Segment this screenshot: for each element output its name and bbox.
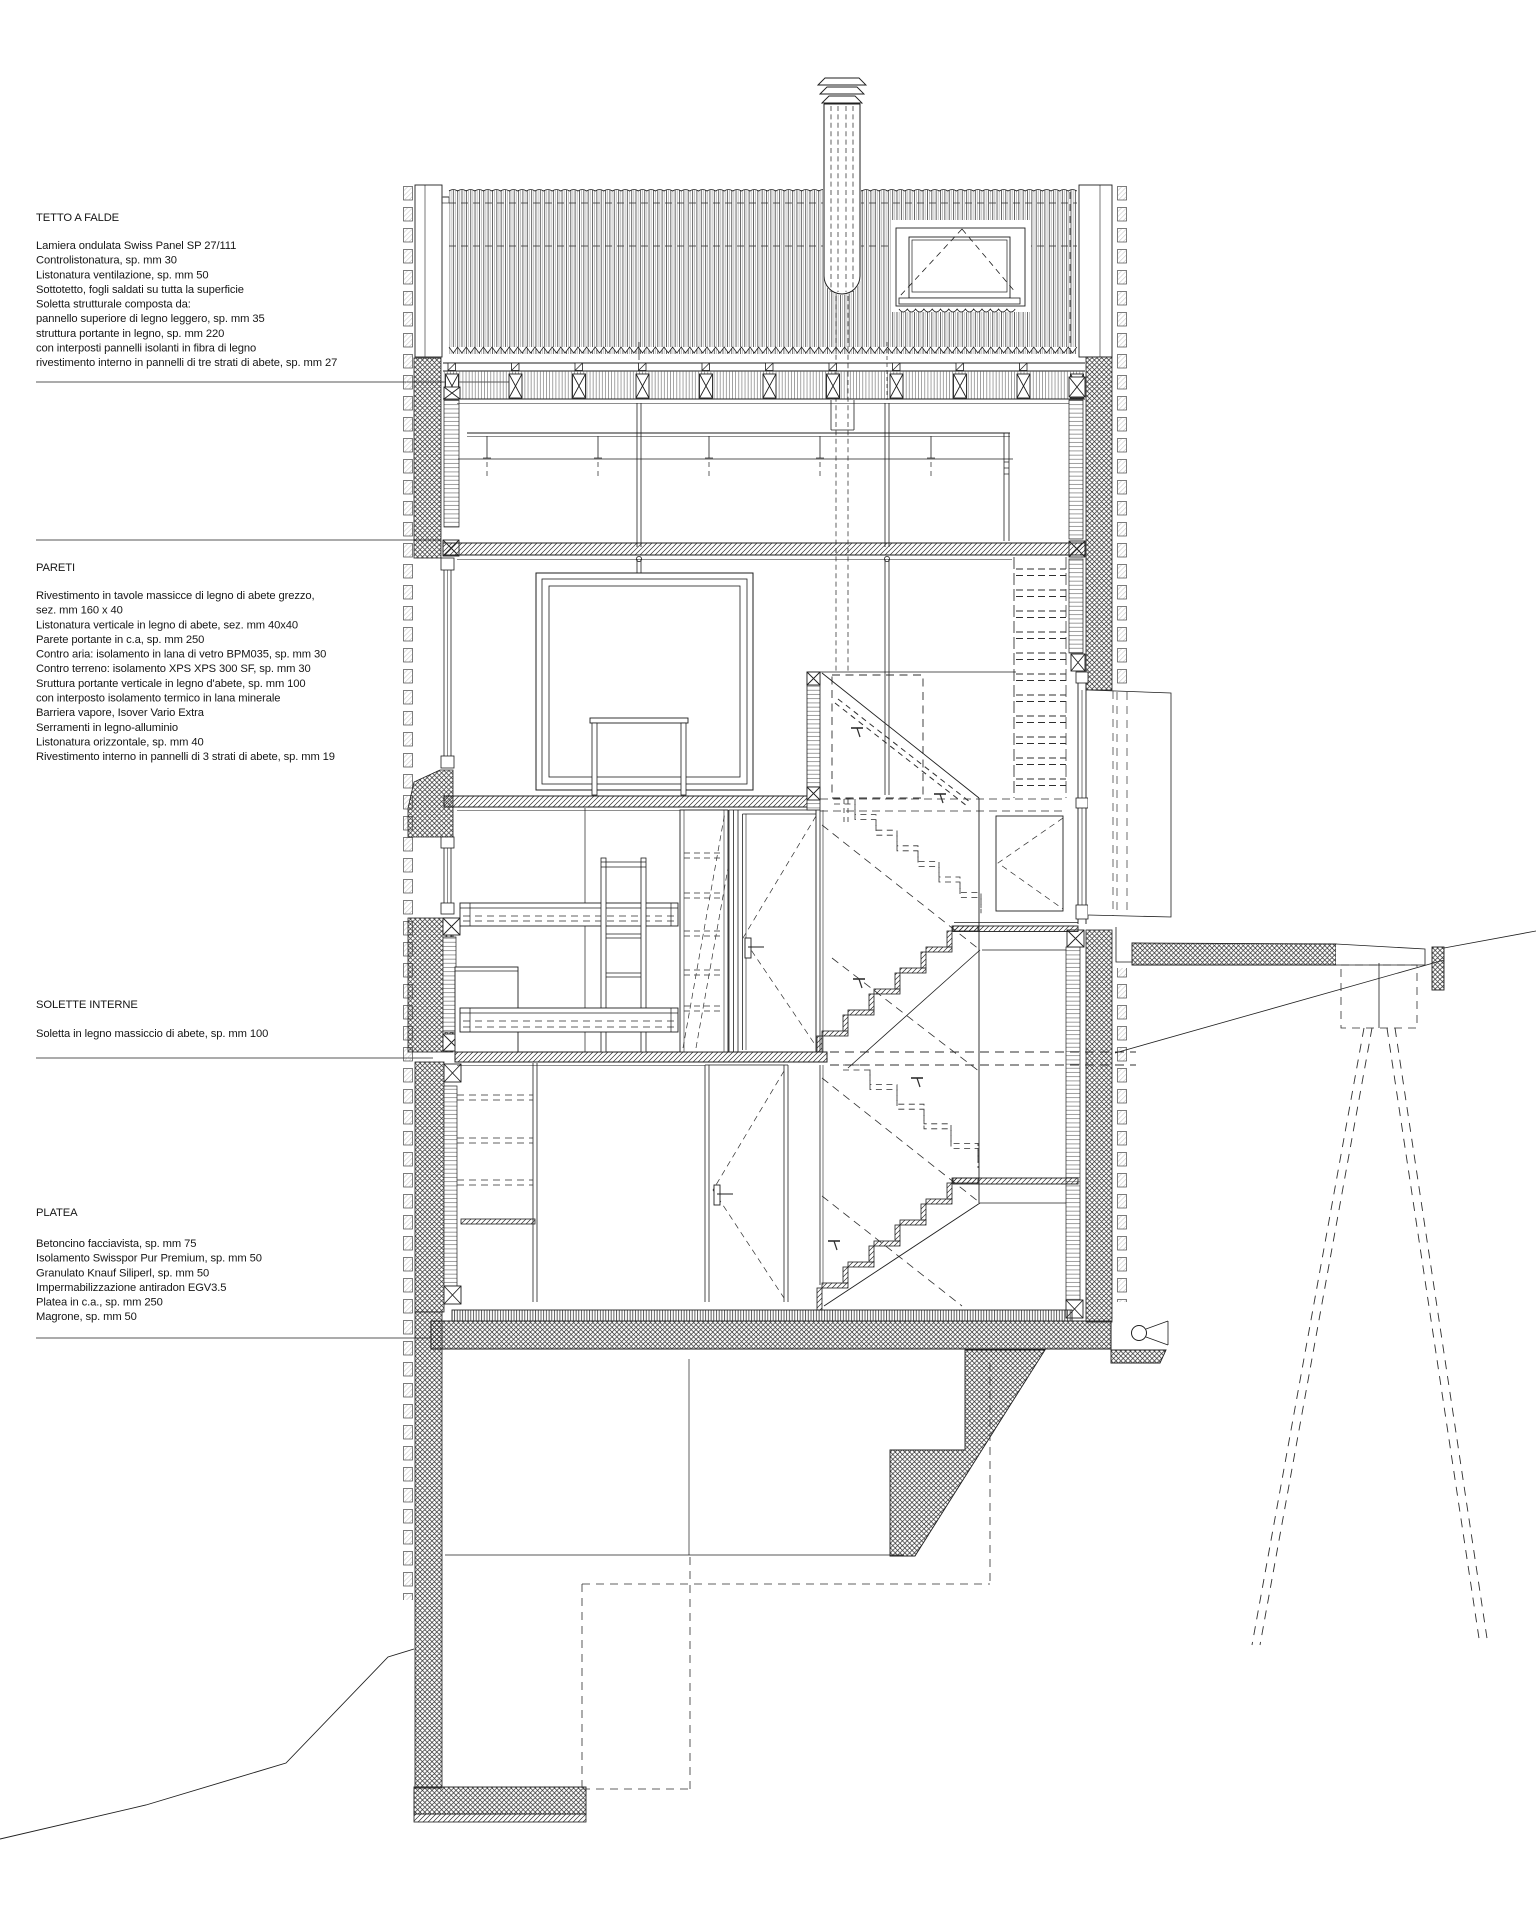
- svg-text:Platea in c.a., sp. mm 250: Platea in c.a., sp. mm 250: [36, 1297, 163, 1309]
- svg-text:Barriera vapore, Isover Vario: Barriera vapore, Isover Vario Extra: [36, 707, 205, 719]
- svg-text:con interposto isolamento term: con interposto isolamento termico in lan…: [36, 693, 280, 705]
- svg-text:sez. mm 160 x 40: sez. mm 160 x 40: [36, 605, 123, 617]
- svg-text:pannello superiore di legno le: pannello superiore di legno leggero, sp.…: [36, 313, 265, 325]
- svg-text:Lamiera ondulata Swiss Panel S: Lamiera ondulata Swiss Panel SP 27/111: [36, 240, 236, 252]
- svg-text:Contro aria: isolamento in lan: Contro aria: isolamento in lana di vetro…: [36, 649, 326, 661]
- svg-text:Isolamento Swisspor Pur Premiu: Isolamento Swisspor Pur Premium, sp. mm …: [36, 1253, 262, 1265]
- svg-text:Serramenti in legno-alluminio: Serramenti in legno-alluminio: [36, 722, 178, 734]
- svg-text:PLATEA: PLATEA: [36, 1207, 78, 1219]
- svg-text:Magrone, sp. mm 50: Magrone, sp. mm 50: [36, 1311, 137, 1323]
- svg-text:Sruttura portante verticale in: Sruttura portante verticale in legno d'a…: [36, 678, 306, 690]
- svg-text:Rivestimento interno in pannel: Rivestimento interno in pannelli di 3 st…: [36, 751, 335, 763]
- svg-text:Rivestimento in tavole massicc: Rivestimento in tavole massicce di legno…: [36, 590, 314, 602]
- svg-text:Soletta strutturale composta d: Soletta strutturale composta da:: [36, 299, 191, 311]
- svg-text:TETTO A FALDE: TETTO A FALDE: [36, 212, 119, 224]
- svg-text:struttura portante in legno, s: struttura portante in legno, sp. mm 220: [36, 328, 224, 340]
- svg-text:Listonatura orizzontale, sp. m: Listonatura orizzontale, sp. mm 40: [36, 737, 204, 749]
- svg-text:Betoncino facciavista, sp. mm: Betoncino facciavista, sp. mm 75: [36, 1238, 196, 1250]
- svg-text:Listonatura verticale in legno: Listonatura verticale in legno di abete,…: [36, 619, 298, 631]
- svg-text:Contro terreno: isolamento XPS: Contro terreno: isolamento XPS XPS 300 S…: [36, 663, 311, 675]
- svg-text:rivestimento interno in pannel: rivestimento interno in pannelli di tre …: [36, 357, 337, 369]
- svg-text:Impermabilizzazione antiradon: Impermabilizzazione antiradon EGV3.5: [36, 1282, 226, 1294]
- svg-text:SOLETTE INTERNE: SOLETTE INTERNE: [36, 999, 138, 1011]
- svg-text:Parete portante in c.a, sp. mm: Parete portante in c.a, sp. mm 250: [36, 634, 204, 646]
- svg-text:con interposti pannelli isolan: con interposti pannelli isolanti in fibr…: [36, 343, 256, 355]
- svg-text:Controlistonatura, sp. mm 30: Controlistonatura, sp. mm 30: [36, 255, 177, 267]
- svg-text:Listonatura ventilazione, sp.: Listonatura ventilazione, sp. mm 50: [36, 269, 209, 281]
- svg-text:Granulato Knauf Siliperl, sp.: Granulato Knauf Siliperl, sp. mm 50: [36, 1267, 209, 1279]
- svg-text:Soletta in legno massiccio di: Soletta in legno massiccio di abete, sp.…: [36, 1028, 268, 1040]
- svg-text:PARETI: PARETI: [36, 562, 75, 574]
- svg-text:Sottotetto, fogli saldati su t: Sottotetto, fogli saldati su tutta la su…: [36, 284, 244, 296]
